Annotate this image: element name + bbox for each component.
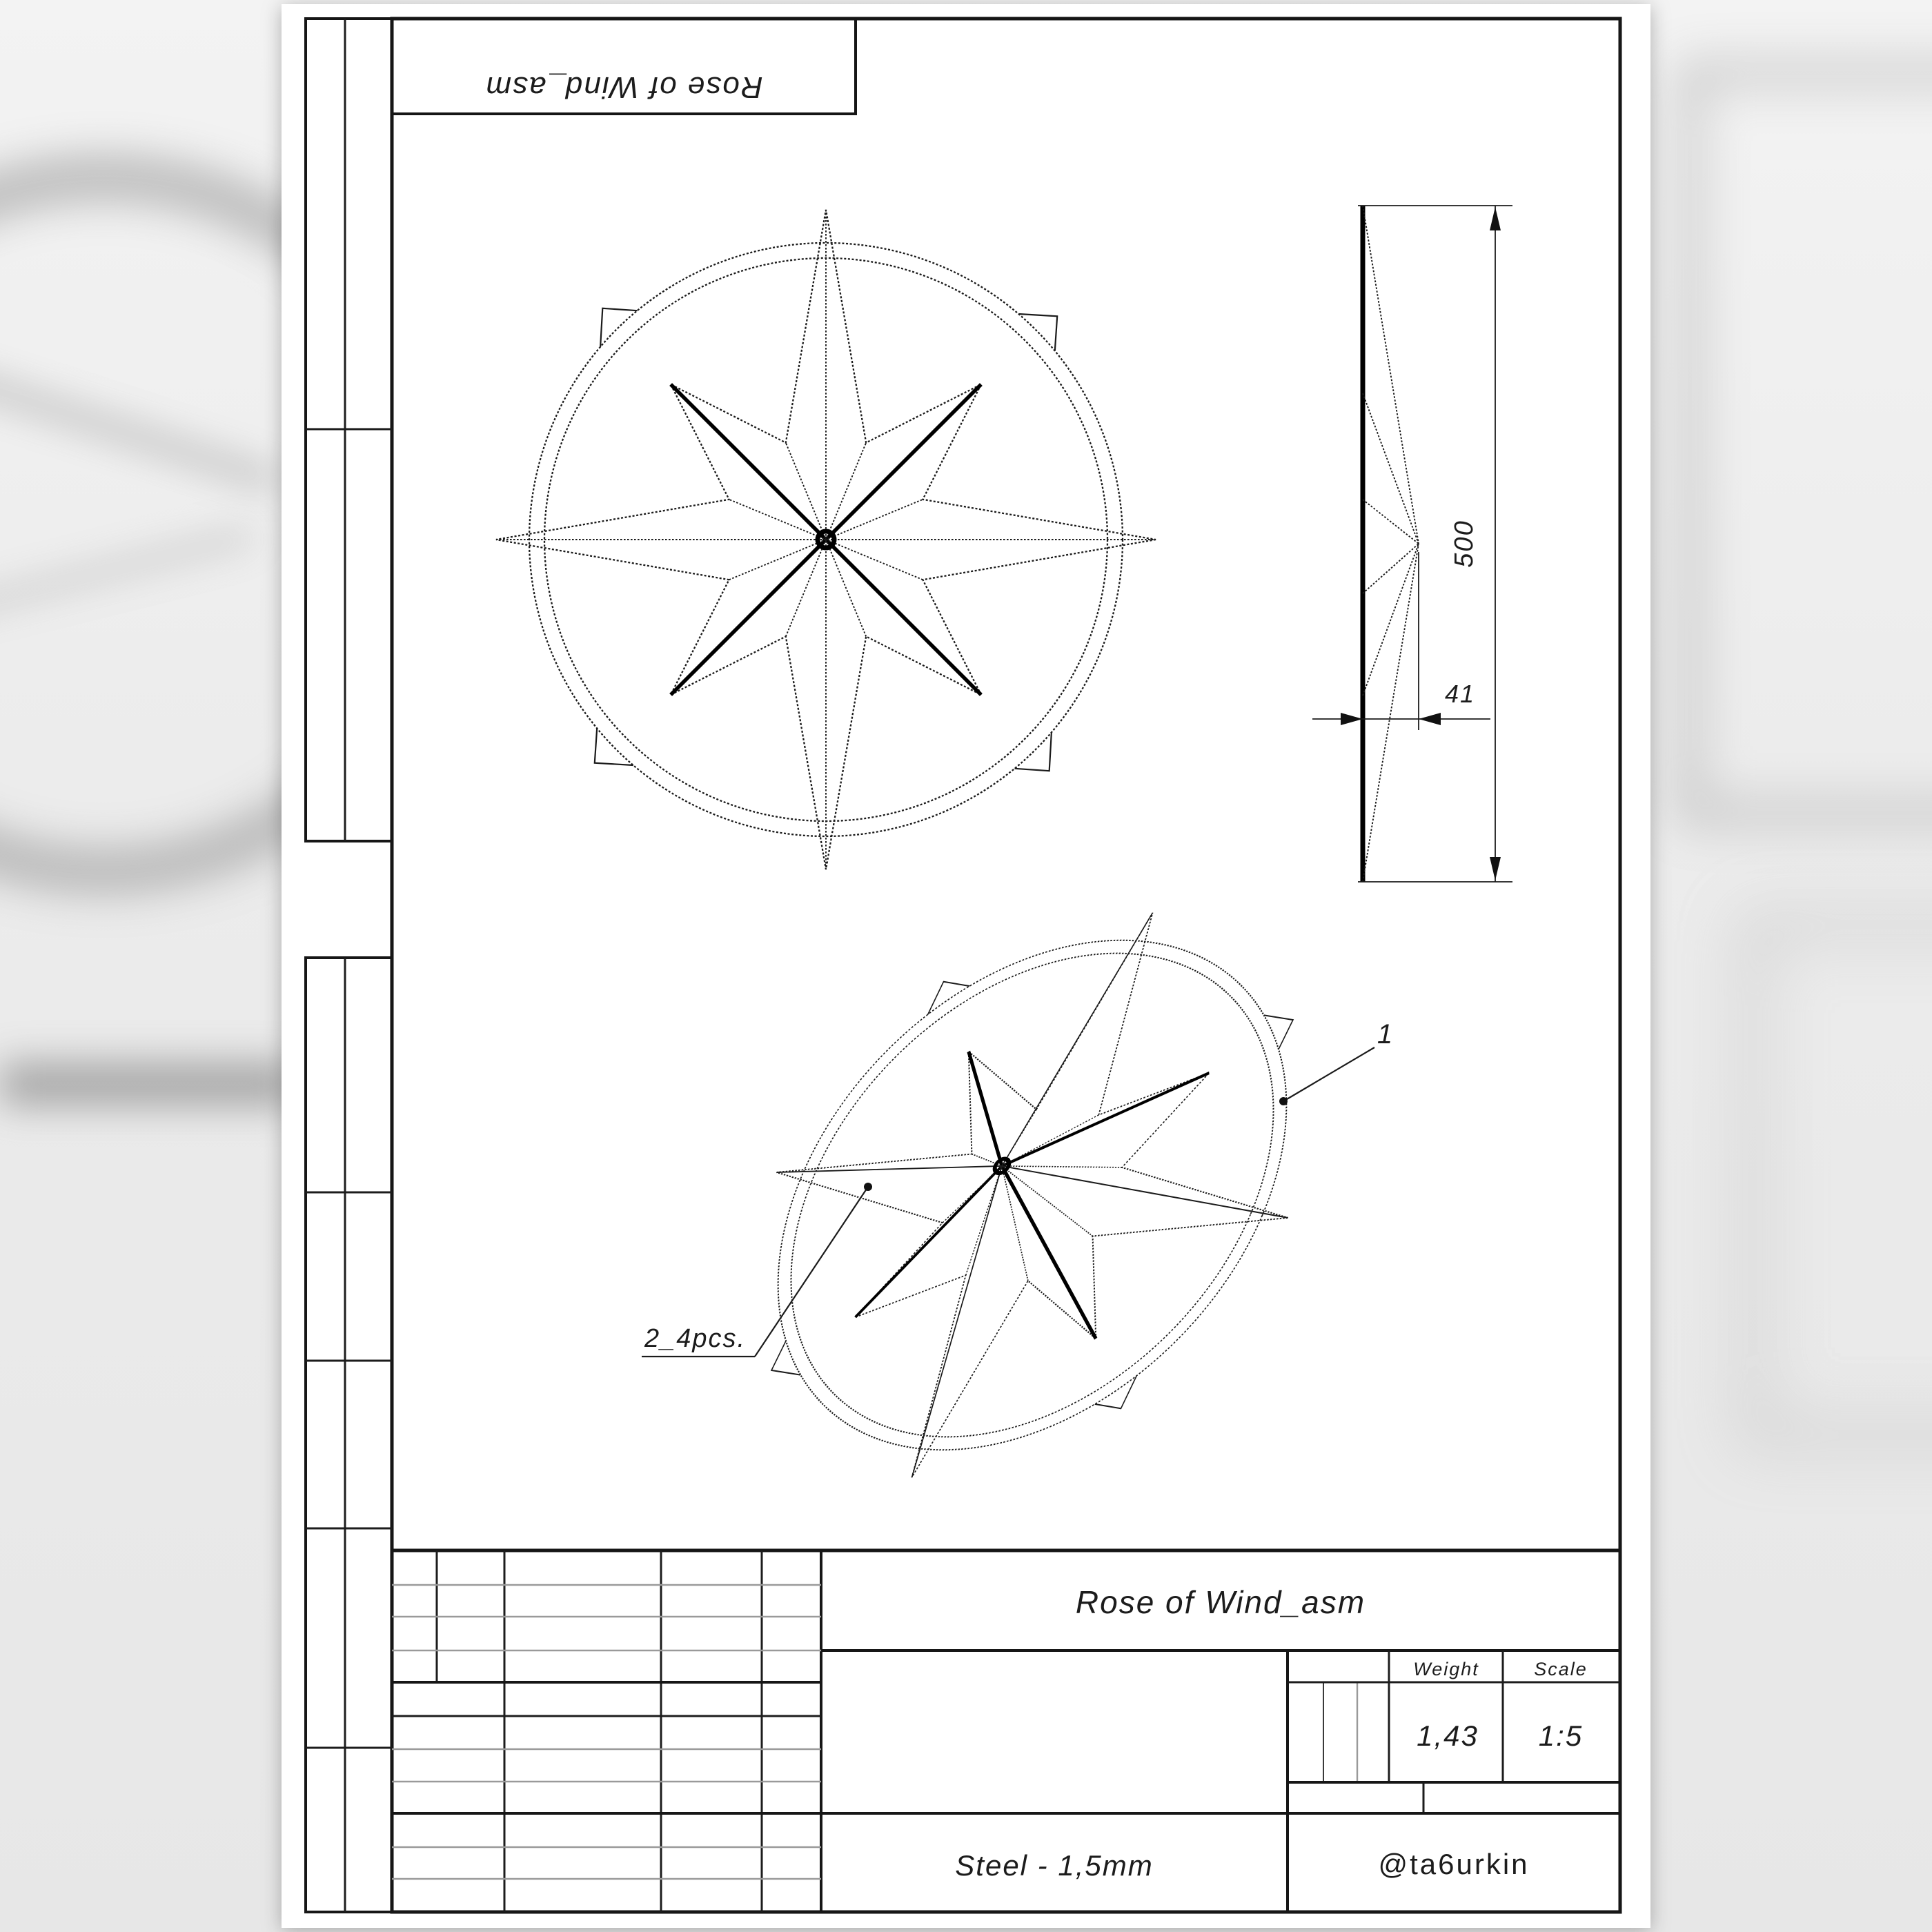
orientation-label: Rose of Wind_asm	[484, 70, 762, 104]
page-background: Rose of Wind_asm 500 41	[0, 0, 1932, 1932]
title-text: Rose of Wind_asm	[1076, 1584, 1366, 1620]
weight-label: Weight	[1413, 1659, 1479, 1679]
callout-1-label: 1	[1377, 1019, 1394, 1049]
callout-2-label: 2_4pcs.	[644, 1324, 746, 1353]
author-text: @ta6urkin	[1378, 1848, 1529, 1880]
drawing-sheet-svg: Rose of Wind_asm 500 41	[0, 0, 1932, 1932]
paper-sheet	[282, 4, 1650, 1928]
material-text: Steel - 1,5mm	[955, 1849, 1153, 1882]
weight-value: 1,43	[1417, 1719, 1479, 1752]
dim-500-label: 500	[1450, 520, 1479, 567]
dim-41-label: 41	[1445, 680, 1475, 708]
scale-label: Scale	[1534, 1659, 1588, 1679]
scale-value: 1:5	[1539, 1719, 1583, 1752]
